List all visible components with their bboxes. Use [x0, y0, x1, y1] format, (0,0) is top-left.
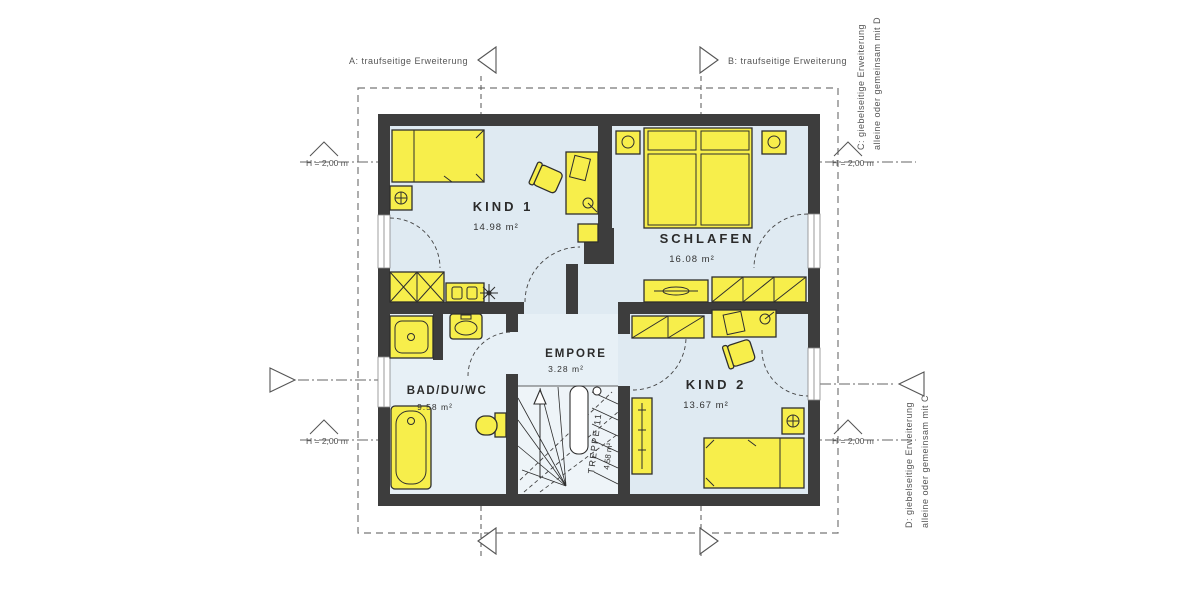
annotation-b: B: traufseitige Erweiterung [728, 56, 847, 66]
nightstand-kind2 [782, 408, 804, 434]
marker-bottom-left-triangle [478, 528, 496, 554]
floor-plan-page: TREPPE 11 4.58 m² KIND 1 14.98 m² SCHLAF… [0, 0, 1200, 600]
schlafen-label: SCHLAFEN [660, 231, 755, 246]
kind2-area: 13.67 m² [683, 400, 729, 411]
marker-b-triangle [700, 47, 718, 73]
nightstand-schlafen-left [616, 131, 640, 154]
height-label-bottom-left: H = 2,00 m [306, 436, 348, 446]
empore-area: 3.28 m² [548, 364, 584, 374]
double-bed-schlafen [644, 128, 752, 228]
empore-label: EMPORE [545, 348, 607, 360]
bad-area: 9.58 m² [417, 402, 453, 412]
bad-label: BAD/DU/WC [407, 385, 488, 397]
shelf-kind2 [632, 398, 652, 474]
schlafen-area: 16.08 m² [669, 254, 715, 265]
window-kind1 [378, 215, 390, 268]
toilet [476, 413, 506, 437]
marker-right-triangle [899, 372, 924, 396]
nightstand-kind1 [390, 186, 412, 210]
wardrobe-kind2 [632, 316, 704, 338]
window-kind2 [808, 348, 820, 400]
marker-a-triangle [478, 47, 496, 73]
annotation-d-line1: D: giebelseitige Erweiterung [904, 402, 914, 528]
cabinet-kind1 [578, 224, 598, 242]
bed-kind1 [392, 130, 484, 182]
annotation-c-line1: C: giebelseitige Erweiterung [856, 24, 866, 150]
wardrobe-schlafen [712, 277, 806, 302]
window-schlafen [808, 214, 820, 268]
washbasin [450, 314, 482, 339]
wardrobe-kind1 [390, 272, 444, 302]
shower [390, 316, 433, 358]
height-label-top-left: H = 2,00 m [306, 158, 348, 168]
desk-kind2 [712, 310, 776, 337]
stair-divider [570, 386, 588, 454]
bed-kind2 [704, 438, 804, 488]
kind1-area: 14.98 m² [473, 222, 519, 233]
bathtub [391, 406, 431, 489]
vanity-kind1 [446, 283, 484, 302]
annotation-c-line2: alleine oder gemeinsam mit D [872, 17, 882, 150]
marker-bottom-right-triangle [700, 528, 718, 554]
kind1-label: KIND 1 [473, 199, 534, 214]
height-label-bottom-right: H = 2,00 m [832, 436, 874, 446]
marker-left-triangle [270, 368, 295, 392]
floor-plan-svg: TREPPE 11 4.58 m² KIND 1 14.98 m² SCHLAF… [0, 0, 1200, 600]
height-label-top-right: H = 2,00 m [832, 158, 874, 168]
window-bad [378, 357, 390, 407]
annotation-d-line2: alleine oder gemeinsam mit C [920, 395, 930, 528]
newel-post [593, 387, 601, 395]
desk-kind1 [566, 152, 598, 214]
nightstand-schlafen-right [762, 131, 786, 154]
annotation-a: A: traufseitige Erweiterung [349, 56, 468, 66]
kind2-label: KIND 2 [686, 377, 747, 392]
sideboard-schlafen [644, 280, 708, 302]
